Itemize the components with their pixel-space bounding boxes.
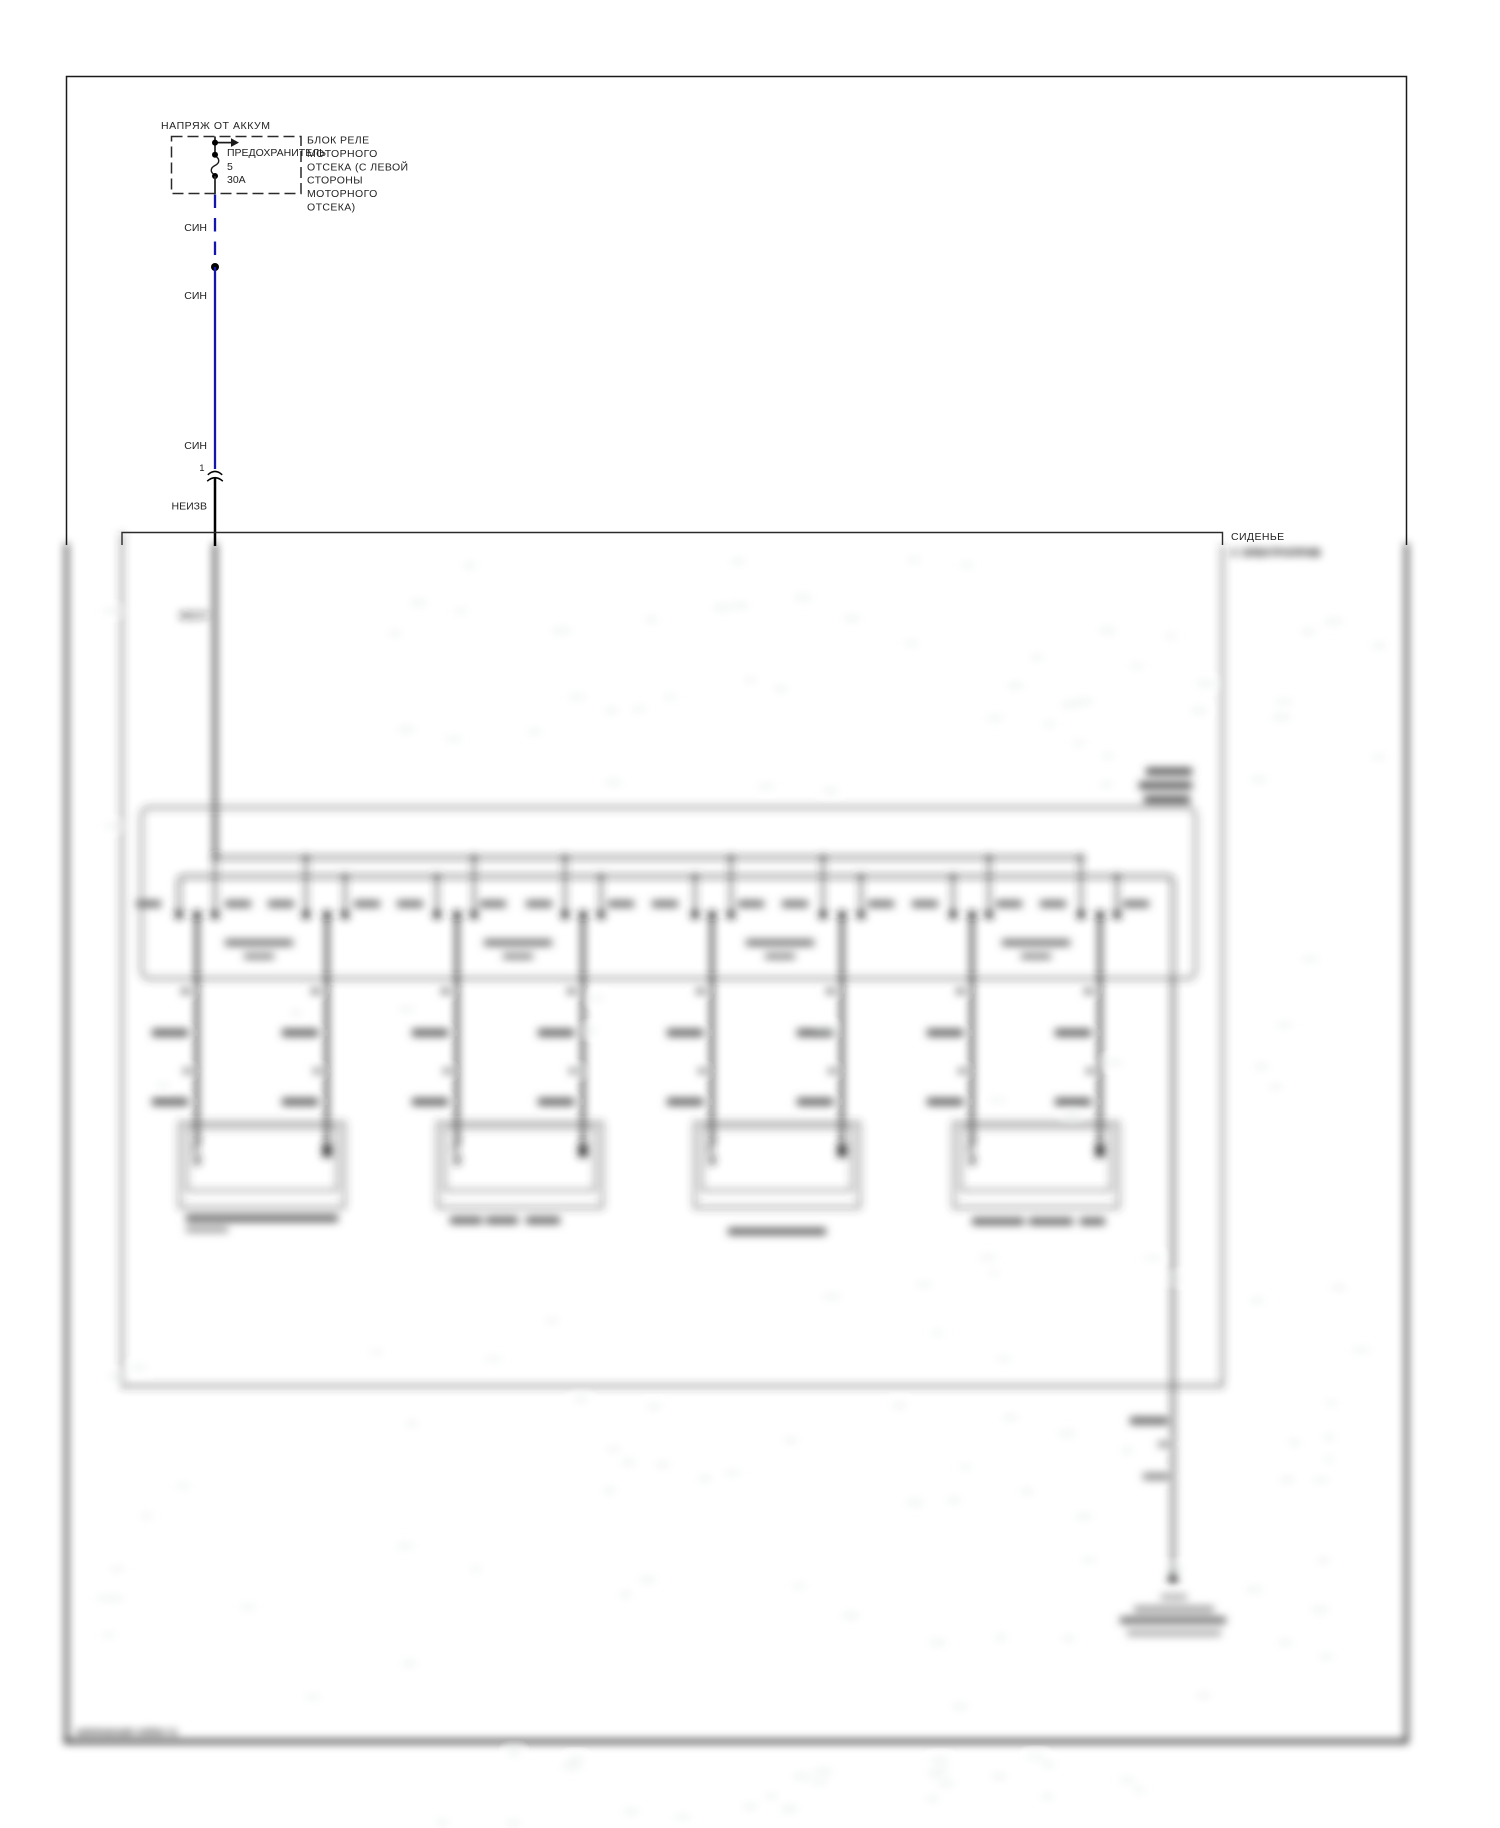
svg-text:СИДЕНЬЕ: СИДЕНЬЕ — [1231, 531, 1285, 543]
svg-text:МОТОРНОГО: МОТОРНОГО — [307, 188, 378, 200]
svg-text:ОТСЕКА (С ЛЕВОЙ: ОТСЕКА (С ЛЕВОЙ — [307, 160, 408, 173]
svg-text:30А: 30А — [227, 174, 246, 186]
svg-text:ОТСЕКА): ОТСЕКА) — [307, 202, 356, 214]
svg-text:СИН: СИН — [184, 290, 207, 302]
svg-text:ЖЕЛ: ЖЕЛ — [179, 610, 208, 622]
svg-text:automanuals online ru: automanuals online ru — [76, 1727, 178, 1738]
svg-text:МОТОРНОГО: МОТОРНОГО — [307, 148, 378, 160]
svg-text:НЕИЗВ: НЕИЗВ — [172, 501, 207, 513]
svg-text:С ЭЛЕКТРОПРИВ: С ЭЛЕКТРОПРИВ — [1231, 547, 1321, 559]
svg-text:1: 1 — [199, 463, 204, 474]
svg-text:БЛОК РЕЛЕ: БЛОК РЕЛЕ — [307, 135, 369, 147]
svg-text:СТОРОНЫ: СТОРОНЫ — [307, 175, 363, 187]
svg-text:НАПРЯЖ ОТ АККУМ: НАПРЯЖ ОТ АККУМ — [161, 120, 271, 132]
svg-text:СИН: СИН — [184, 440, 207, 452]
svg-text:СИН: СИН — [184, 222, 207, 234]
svg-text:5: 5 — [227, 161, 233, 173]
